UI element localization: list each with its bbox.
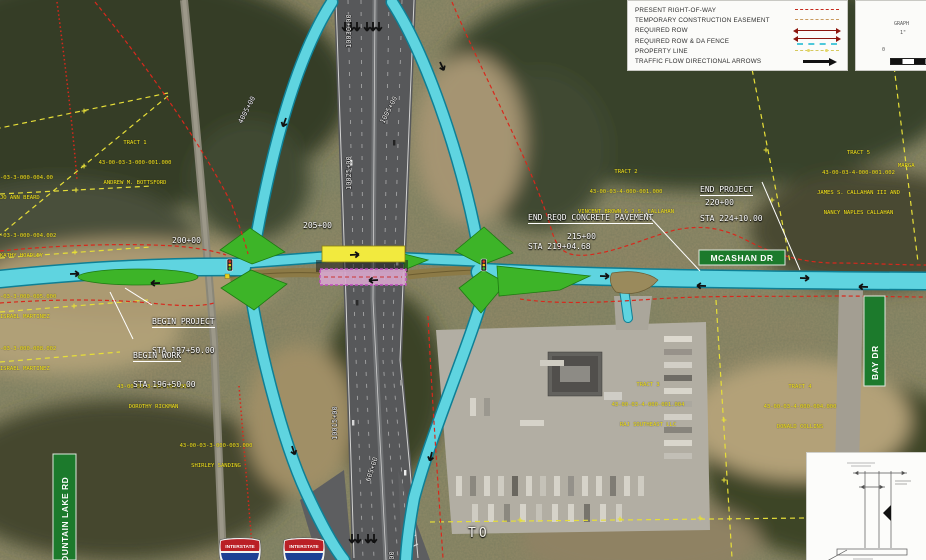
proposed-bridge-highlight [322, 246, 405, 262]
parcel-edge-line1: MARGA [898, 163, 926, 170]
temporary-easement-symbol-icon [793, 16, 841, 24]
bay-dr-sign-label: BAY DR [870, 345, 880, 380]
traffic-flow-symbol-icon [793, 58, 841, 66]
parcel-martinez1-line1: -03-3-000-005.000 [0, 294, 66, 301]
station-215: 215+00 [567, 232, 596, 241]
interstate-shield-label: INTERSTATE [225, 544, 255, 550]
station-205: 205+00 [303, 221, 332, 230]
tract-3-line2: 43-00-03-4-000-001.004 [598, 402, 698, 409]
end-reqd-line2: STA 219+04.68 [528, 242, 653, 251]
tract-1-line1: TRACT 1 [85, 140, 185, 147]
end-reqd-line1: END REQD CONCRETE PAVEMENT [528, 213, 653, 224]
legend-label-tce: TEMPORARY CONSTRUCTION EASEMENT [635, 17, 770, 24]
legend-label-traffic-flow: TRAFFIC FLOW DIRECTIONAL ARROWS [635, 58, 761, 65]
legend-row: TEMPORARY CONSTRUCTION EASEMENT [635, 15, 841, 25]
graphic-scale-zero: 0 [882, 47, 885, 53]
graphic-scale-box: GRAPH 1" 0 [855, 0, 926, 71]
end-project-line1: END PROJECT [700, 185, 753, 196]
graphic-scale-ratio: 1" [900, 30, 906, 36]
station-10015: 10015+00 [331, 406, 339, 440]
typical-section-inset [806, 452, 926, 560]
station-10030: 10030+00 [345, 14, 353, 48]
tract-1-line2: 43-00-03-3-000-001.000 [85, 160, 185, 167]
tract-5-line2: 43-00-03-4-000-001.002 [806, 170, 911, 177]
bridge-area [316, 246, 408, 285]
tract-4-line3: DONALD COLLINS [750, 424, 850, 431]
roadway-plan-sheet: 10030+00 10025+00 10015+00 10010+00 4005… [0, 0, 926, 560]
parcel-hoadley-line1: -03-3-000-004.002 [0, 233, 72, 240]
station-10025: 10025+00 [345, 156, 353, 190]
interstate-shield-icon: INTERSTATE [217, 536, 263, 560]
interstate-shield-label: INTERSTATE [289, 544, 319, 550]
begin-work-line2: STA 196+50.00 [133, 380, 196, 389]
tract-5-line3: JAMES S. CALLAHAN III AND [806, 190, 911, 197]
typical-section-drawing [807, 453, 926, 560]
required-row-fence-symbol-icon [793, 37, 841, 45]
legend-label-property-line: PROPERTY LINE [635, 48, 688, 55]
required-row-symbol-icon [793, 27, 841, 35]
tract-3-line1: TRACT 3 [598, 382, 698, 389]
legend-row: REQUIRED ROW & DA FENCE [635, 36, 841, 46]
to-label: TO [468, 526, 490, 541]
parcel-beard-label: -03-3-000-004.00 JO ANN BEARD [0, 162, 82, 215]
tract-2-line1: TRACT 2 [556, 169, 696, 176]
station-10010: 10010+00 [388, 551, 396, 560]
tract-3-line3: RAJ SOUTHEAST LLC [598, 422, 698, 429]
parcel-martinez1-label: -03-3-000-005.000 ISRAEL MARTINEZ [0, 281, 66, 334]
begin-project-line1: BEGIN PROJECT [152, 317, 215, 328]
present-row-symbol-icon [793, 6, 841, 14]
parcel-edge-label: MARGA [898, 150, 926, 183]
tract-1-line3: ANDREW M. BOTTSFORD [85, 180, 185, 187]
legend-row: TRAFFIC FLOW DIRECTIONAL ARROWS [635, 56, 841, 66]
parcel-beard-line2: JO ANN BEARD [0, 195, 82, 202]
legend-label-row-da-fence: REQUIRED ROW & DA FENCE [635, 38, 729, 45]
parcel-hoadley-line2: KATHY HOADLEY [0, 253, 72, 260]
mcashan-dr-sign-label: MCASHAN DR [710, 253, 773, 263]
end-project-line2: STA 224+10.00 [700, 214, 763, 223]
parcel-martinez1-line2: ISRAEL MARTINEZ [0, 314, 66, 321]
interstate-shield-icon: INTERSTATE [281, 536, 327, 560]
mountain-lake-rd-sign-label: MOUNTAIN LAKE RD [60, 477, 70, 560]
tract-5-line4: NANCY NAPLES CALLAHAN [806, 210, 911, 217]
plan-map: 10030+00 10025+00 10015+00 10010+00 4005… [0, 0, 926, 560]
parcel-martinez2-line2: ISRAEL MARTINEZ [0, 366, 72, 373]
station-220: 220+00 [705, 198, 734, 207]
tract-5-line1: TRACT 5 [806, 150, 911, 157]
station-200: 200+00 [172, 236, 201, 245]
tract-5-label: TRACT 5 43-00-03-4-000-001.002 JAMES S. … [806, 137, 911, 229]
parcel-martinez2-label: -03-3-000-008.002 ISRAEL MARTINEZ [0, 333, 72, 386]
parcel-sanding-label: 43-00-03-3-000-003.000 SHIRLEY SANDING [166, 430, 266, 483]
legend-row: PROPERTY LINE [635, 46, 841, 56]
legend-label-required-row: REQUIRED ROW [635, 27, 688, 34]
parcel-hoadley-label: -03-3-000-004.002 KATHY HOADLEY [0, 220, 72, 273]
legend-row: REQUIRED ROW [635, 26, 841, 36]
parcel-sanding-line2: SHIRLEY SANDING [166, 463, 266, 470]
begin-work-line1: BEGIN WORK [133, 351, 181, 362]
parcel-martinez2-line1: -03-3-000-008.002 [0, 346, 72, 353]
tract-4-line1: TRACT 4 [750, 384, 850, 391]
tract-4-label: TRACT 4 43-00-03-4-000-004.000 DONALD CO… [750, 371, 850, 444]
graphic-scale-bar [890, 58, 926, 65]
property-line-symbol-icon [793, 47, 841, 55]
tract-4-line2: 43-00-03-4-000-004.000 [750, 404, 850, 411]
parcel-sanding-line1: 43-00-03-3-000-003.000 [166, 443, 266, 450]
tract-3-label: TRACT 3 43-00-03-4-000-001.004 RAJ SOUTH… [598, 369, 698, 442]
legend-row: PRESENT RIGHT-OF-WAY [635, 5, 841, 15]
tract-1-label: TRACT 1 43-00-03-3-000-001.000 ANDREW M.… [85, 127, 185, 200]
parcel-beard-line1: -03-3-000-004.00 [0, 175, 82, 182]
begin-work-callout: BEGIN WORK STA 196+50.00 [133, 333, 196, 407]
legend-box: PRESENT RIGHT-OF-WAY TEMPORARY CONSTRUCT… [627, 0, 848, 71]
graphic-scale-title: GRAPH [894, 21, 909, 27]
legend-label-present-row: PRESENT RIGHT-OF-WAY [635, 7, 716, 14]
